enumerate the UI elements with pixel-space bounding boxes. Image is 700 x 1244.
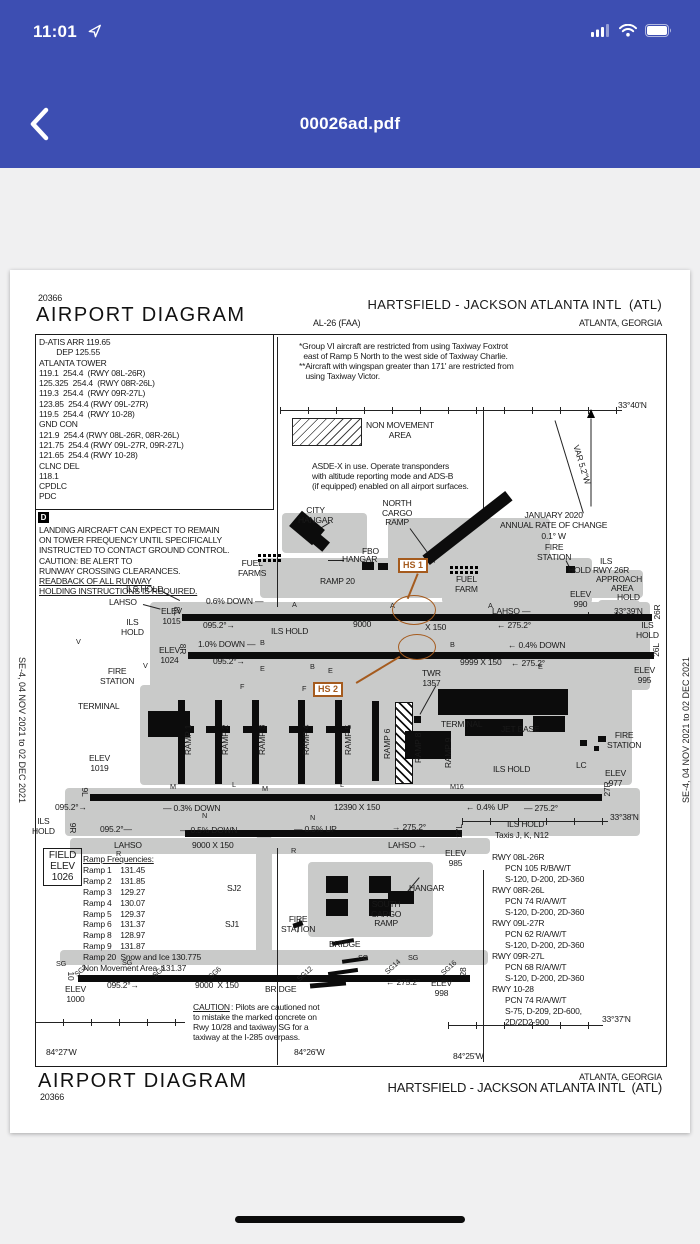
diagram-label: ELEV 985 — [445, 849, 466, 868]
diagram-label: SJ2 — [227, 884, 241, 894]
diagram-label: 33°37'N — [602, 1015, 631, 1025]
diagram-label: 9L — [79, 787, 89, 796]
battery-icon — [645, 24, 672, 42]
diagram-label: ILS HOLD — [126, 585, 163, 595]
diagram-label: SG — [408, 954, 418, 962]
diagram-label: 84°25'W — [453, 1052, 484, 1062]
location-arrow-icon — [88, 24, 102, 43]
diagram-label: ELEV 1000 — [65, 985, 86, 1004]
home-indicator[interactable] — [235, 1216, 465, 1223]
diagram-label: SG — [56, 960, 66, 968]
diagram-label: 8R — [177, 644, 187, 654]
diagram-label: R — [291, 847, 296, 855]
status-time: 11:01 — [33, 22, 77, 42]
diagram-label: N — [202, 812, 207, 820]
diagram-label: 9R — [67, 823, 77, 833]
diagram-label: JET BASE — [501, 725, 539, 735]
diagram-label: V — [76, 638, 81, 646]
status-bar: 11:01 — [0, 0, 700, 60]
diagram-label: 9000 X 150 — [195, 981, 239, 991]
diagram-label: L — [340, 781, 344, 789]
diagram-label: FBO — [362, 547, 379, 557]
diagram-label: 095.2°→ — [203, 621, 235, 631]
diagram-label: 9999 X 150 — [460, 658, 501, 668]
diagram-label: 26L — [652, 643, 662, 657]
diagram-label: 9000 X 150 — [192, 841, 233, 851]
diagram-label: F — [302, 685, 306, 693]
diagram-label: N — [310, 814, 315, 822]
diagram-label: ILS HOLD — [507, 820, 544, 830]
diagram-label: BRIDGE — [329, 940, 360, 950]
diagram-label: 095.2°→ — [107, 981, 139, 991]
diagram-label: 8L — [171, 606, 181, 615]
diagram-label: taxiway at the I-285 overpass. — [193, 1033, 300, 1043]
diagram-label: LAHSO — — [492, 607, 530, 617]
diagram-label: X 150 — [425, 623, 446, 633]
diagram-label: 84°26'W — [294, 1048, 325, 1058]
diagram-label: HOLD — [617, 593, 640, 603]
diagram-label: SG4 — [151, 964, 167, 979]
diagram-label: 33°40'N — [618, 401, 647, 411]
diagram-label: A — [292, 601, 297, 609]
diagram-label: SG — [358, 954, 368, 962]
diagram-label: 33°39'N — [614, 607, 643, 617]
diagram-label: FUEL FARMS — [238, 559, 266, 578]
wifi-icon — [619, 24, 637, 42]
diagram-label: TWR 1357 — [422, 669, 441, 688]
diagram-label: ← 275.2° — [497, 621, 531, 631]
diagram-label: 27R — [603, 782, 613, 797]
diagram-label: ILS HOLD — [636, 621, 659, 640]
diagram-label: RAMP 5 — [344, 725, 354, 755]
diagram-label: SG12 — [296, 965, 315, 983]
hotspot-box: HS 2 — [313, 682, 343, 697]
diagram-label: ← 275.2° — [386, 978, 420, 988]
diagram-label: RAMP 3 — [258, 725, 268, 755]
diagram-label: LC — [576, 761, 586, 771]
diagram-label: VAR 5.2°W — [571, 444, 592, 486]
diagram-label: FIRE STATION — [100, 667, 134, 686]
diagram-label: ELEV 995 — [634, 666, 655, 685]
diagram-label: ELEV 1019 — [89, 754, 110, 773]
diagram-label: 84°27'W — [46, 1048, 77, 1058]
diagram-labels: CITY HANGARNORTH CARGO RAMPHANGARFBOFUEL… — [10, 270, 690, 1133]
diagram-label: RAMP 2 — [221, 725, 231, 755]
diagram-label: ILS HOLD — [32, 817, 55, 836]
diagram-label: — 0.3% DOWN — [163, 804, 220, 814]
diagram-label: — 0.5% DOWN — [180, 826, 237, 836]
diagram-label: E — [538, 663, 543, 671]
footer-chart-number: 20366 — [40, 1093, 64, 1103]
document-title: 00026ad.pdf — [0, 114, 700, 134]
diagram-label: ← 0.4% UP — [466, 803, 509, 813]
diagram-label: 9000 — [353, 620, 371, 630]
diagram-label: 095.2°→ — [55, 803, 87, 813]
diagram-label: 33°38'N — [610, 813, 639, 823]
diagram-label: SOUTH CARGO RAMP — [371, 900, 401, 929]
diagram-label: RAMP 1 — [184, 725, 194, 755]
diagram-label: B — [310, 663, 315, 671]
diagram-label: 0.6% DOWN — — [206, 597, 263, 607]
diagram-label: 095.2°→ — [213, 657, 245, 667]
diagram-label: SG16 — [440, 959, 459, 977]
diagram-label: HANGAR — [409, 884, 444, 894]
hotspot-box: HS 1 — [398, 558, 428, 573]
diagram-label: ILS HOLD — [493, 765, 530, 775]
diagram-label: SJ1 — [225, 920, 239, 930]
diagram-label: SG — [122, 959, 132, 967]
diagram-label: FIRE STATION — [281, 915, 315, 934]
diagram-label: FUEL FARM — [455, 575, 478, 594]
diagram-label: — 275.2° — [524, 804, 558, 814]
signal-icon — [591, 24, 611, 42]
footer-airport-title: HARTSFIELD - JACKSON ATLANTA INTL (ATL) — [310, 1083, 662, 1093]
app-header: 11:01 — [0, 0, 700, 168]
diagram-label: ELEV 990 — [570, 590, 591, 609]
diagram-label: L — [232, 781, 236, 789]
diagram-label: 28 — [459, 967, 469, 976]
diagram-label: B — [450, 641, 455, 649]
diagram-label: BRIDGE — [265, 985, 296, 995]
diagram-label: 26R — [653, 605, 663, 620]
diagram-label: RAMP 9 — [444, 738, 454, 768]
diagram-label: A — [488, 602, 493, 610]
diagram-label: M — [262, 785, 268, 793]
diagram-label: 095.2°— — [100, 825, 132, 835]
nav-bar: 00026ad.pdf — [0, 88, 700, 168]
diagram-label: Taxis J, K, N12 — [495, 831, 549, 841]
diagram-label: ELEV 998 — [431, 979, 452, 998]
diagram-label: SG14 — [384, 958, 403, 976]
diagram-label: — 0.5% UP — [294, 825, 337, 835]
diagram-label: E — [328, 667, 333, 675]
diagram-label: V — [143, 662, 148, 670]
diagram-label: RAMP 8 — [414, 733, 424, 763]
diagram-label: LAHSO — [109, 598, 137, 608]
diagram-label: FIRE STATION — [537, 543, 571, 562]
diagram-label: 1.0% DOWN — — [198, 640, 255, 650]
diagram-label: 12390 X 150 — [334, 803, 380, 813]
diagram-label: → 275.2° — [392, 823, 426, 833]
diagram-label: R — [116, 850, 121, 858]
diagram-label: M — [170, 783, 176, 791]
diagram-label: NORTH CARGO RAMP — [382, 499, 412, 528]
diagram-label: RAMP 20 — [320, 577, 355, 587]
diagram-label: RAMP 4 — [302, 725, 312, 755]
diagram-label: ILS HOLD — [271, 627, 308, 637]
diagram-label: SG6 — [207, 965, 223, 980]
diagram-label: F — [240, 683, 244, 691]
diagram-label: E — [260, 665, 265, 673]
chart-cycle-left: SE-4, 04 NOV 2021 to 02 DEC 2021 — [17, 657, 27, 803]
diagram-label: 10 — [65, 971, 75, 980]
diagram-label: TERMINAL — [78, 702, 119, 712]
footer-title: AIRPORT DIAGRAM — [38, 1070, 248, 1093]
diagram-label: FIRE STATION — [607, 731, 641, 750]
diagram-label: 27L — [455, 824, 465, 838]
chart-cycle-right: SE-4, 04 NOV 2021 to 02 DEC 2021 — [681, 657, 691, 803]
diagram-label: ILS HOLD — [121, 618, 144, 637]
diagram-label: LAHSO → — [388, 841, 426, 851]
diagram-label: RAMP 6 — [383, 729, 393, 759]
diagram-label: CITY HANGAR — [298, 506, 333, 525]
pdf-page[interactable]: HS 1HS 2 20366 AIRPORT DIAGRAM HARTSFIEL… — [10, 270, 690, 1133]
diagram-label: B — [260, 639, 265, 647]
diagram-label: M16 — [450, 783, 464, 791]
diagram-label: ← 0.4% DOWN — [508, 641, 565, 651]
diagram-label: TERMINAL — [441, 720, 482, 730]
